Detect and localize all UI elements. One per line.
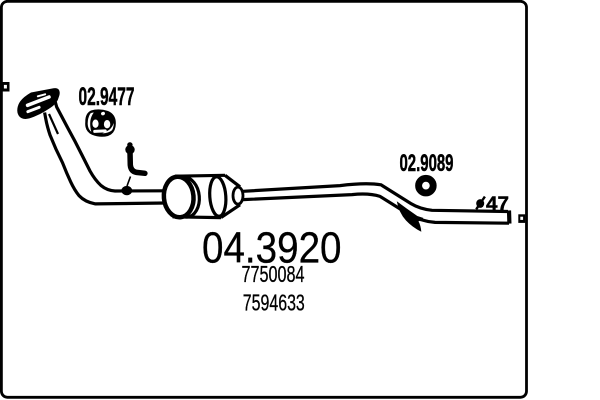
svg-text:7594633: 7594633 bbox=[243, 290, 305, 316]
svg-text:02.9089: 02.9089 bbox=[400, 150, 454, 177]
svg-text:02.9477: 02.9477 bbox=[79, 83, 135, 111]
svg-text:7750084: 7750084 bbox=[242, 261, 305, 287]
svg-text:47: 47 bbox=[486, 193, 509, 215]
